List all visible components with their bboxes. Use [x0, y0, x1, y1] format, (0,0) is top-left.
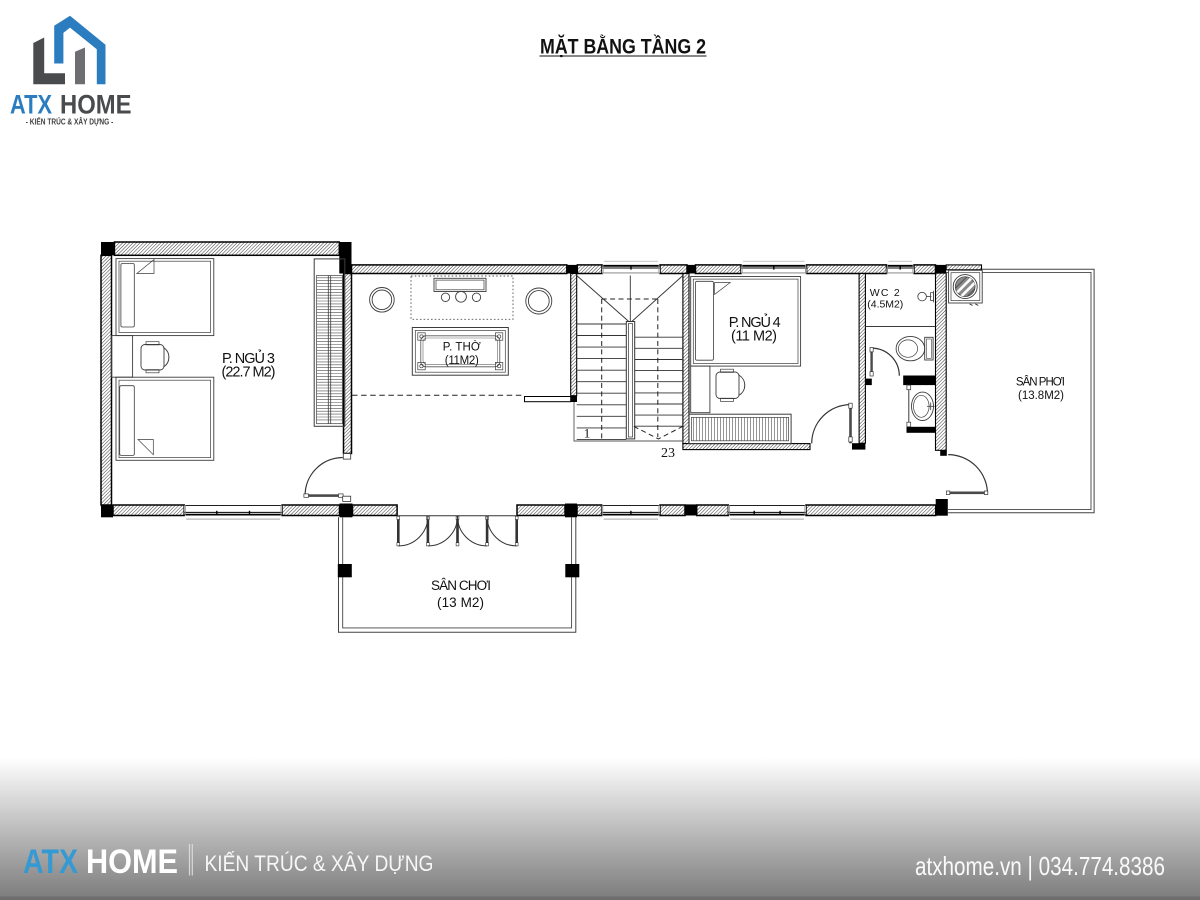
- svg-text:SÂN PHƠI: SÂN PHƠI: [1016, 376, 1065, 389]
- svg-text:atxhome.vn | 034.774.8386: atxhome.vn | 034.774.8386: [915, 851, 1165, 881]
- svg-text:ATX: ATX: [23, 843, 78, 881]
- svg-text:SÂN CHƠI: SÂN CHƠI: [431, 578, 491, 593]
- svg-text:HOME: HOME: [86, 843, 178, 881]
- svg-text:HOME: HOME: [60, 89, 132, 119]
- svg-text:23: 23: [661, 446, 675, 461]
- svg-text:(11M2): (11M2): [445, 355, 479, 367]
- svg-text:(4.5M2): (4.5M2): [867, 299, 903, 311]
- svg-text:(22.7 M2): (22.7 M2): [222, 365, 276, 381]
- svg-text:1: 1: [584, 426, 591, 441]
- svg-text:(13.8M2): (13.8M2): [1018, 390, 1064, 402]
- svg-text:WC 2: WC 2: [870, 287, 900, 299]
- svg-text:- KIẾN TRÚC & XÂY DỰNG -: - KIẾN TRÚC & XÂY DỰNG -: [26, 117, 114, 127]
- svg-text:(11 M2): (11 M2): [731, 328, 777, 344]
- svg-text:ATX: ATX: [10, 89, 52, 119]
- svg-text:MẶT BẰNG TẦNG 2: MẶT BẰNG TẦNG 2: [540, 35, 706, 59]
- svg-text:(13 M2): (13 M2): [437, 595, 484, 610]
- svg-text:KIẾN TRÚC & XÂY DỰNG: KIẾN TRÚC & XÂY DỰNG: [205, 851, 434, 876]
- svg-text:P. THỜ: P. THỜ: [443, 341, 481, 354]
